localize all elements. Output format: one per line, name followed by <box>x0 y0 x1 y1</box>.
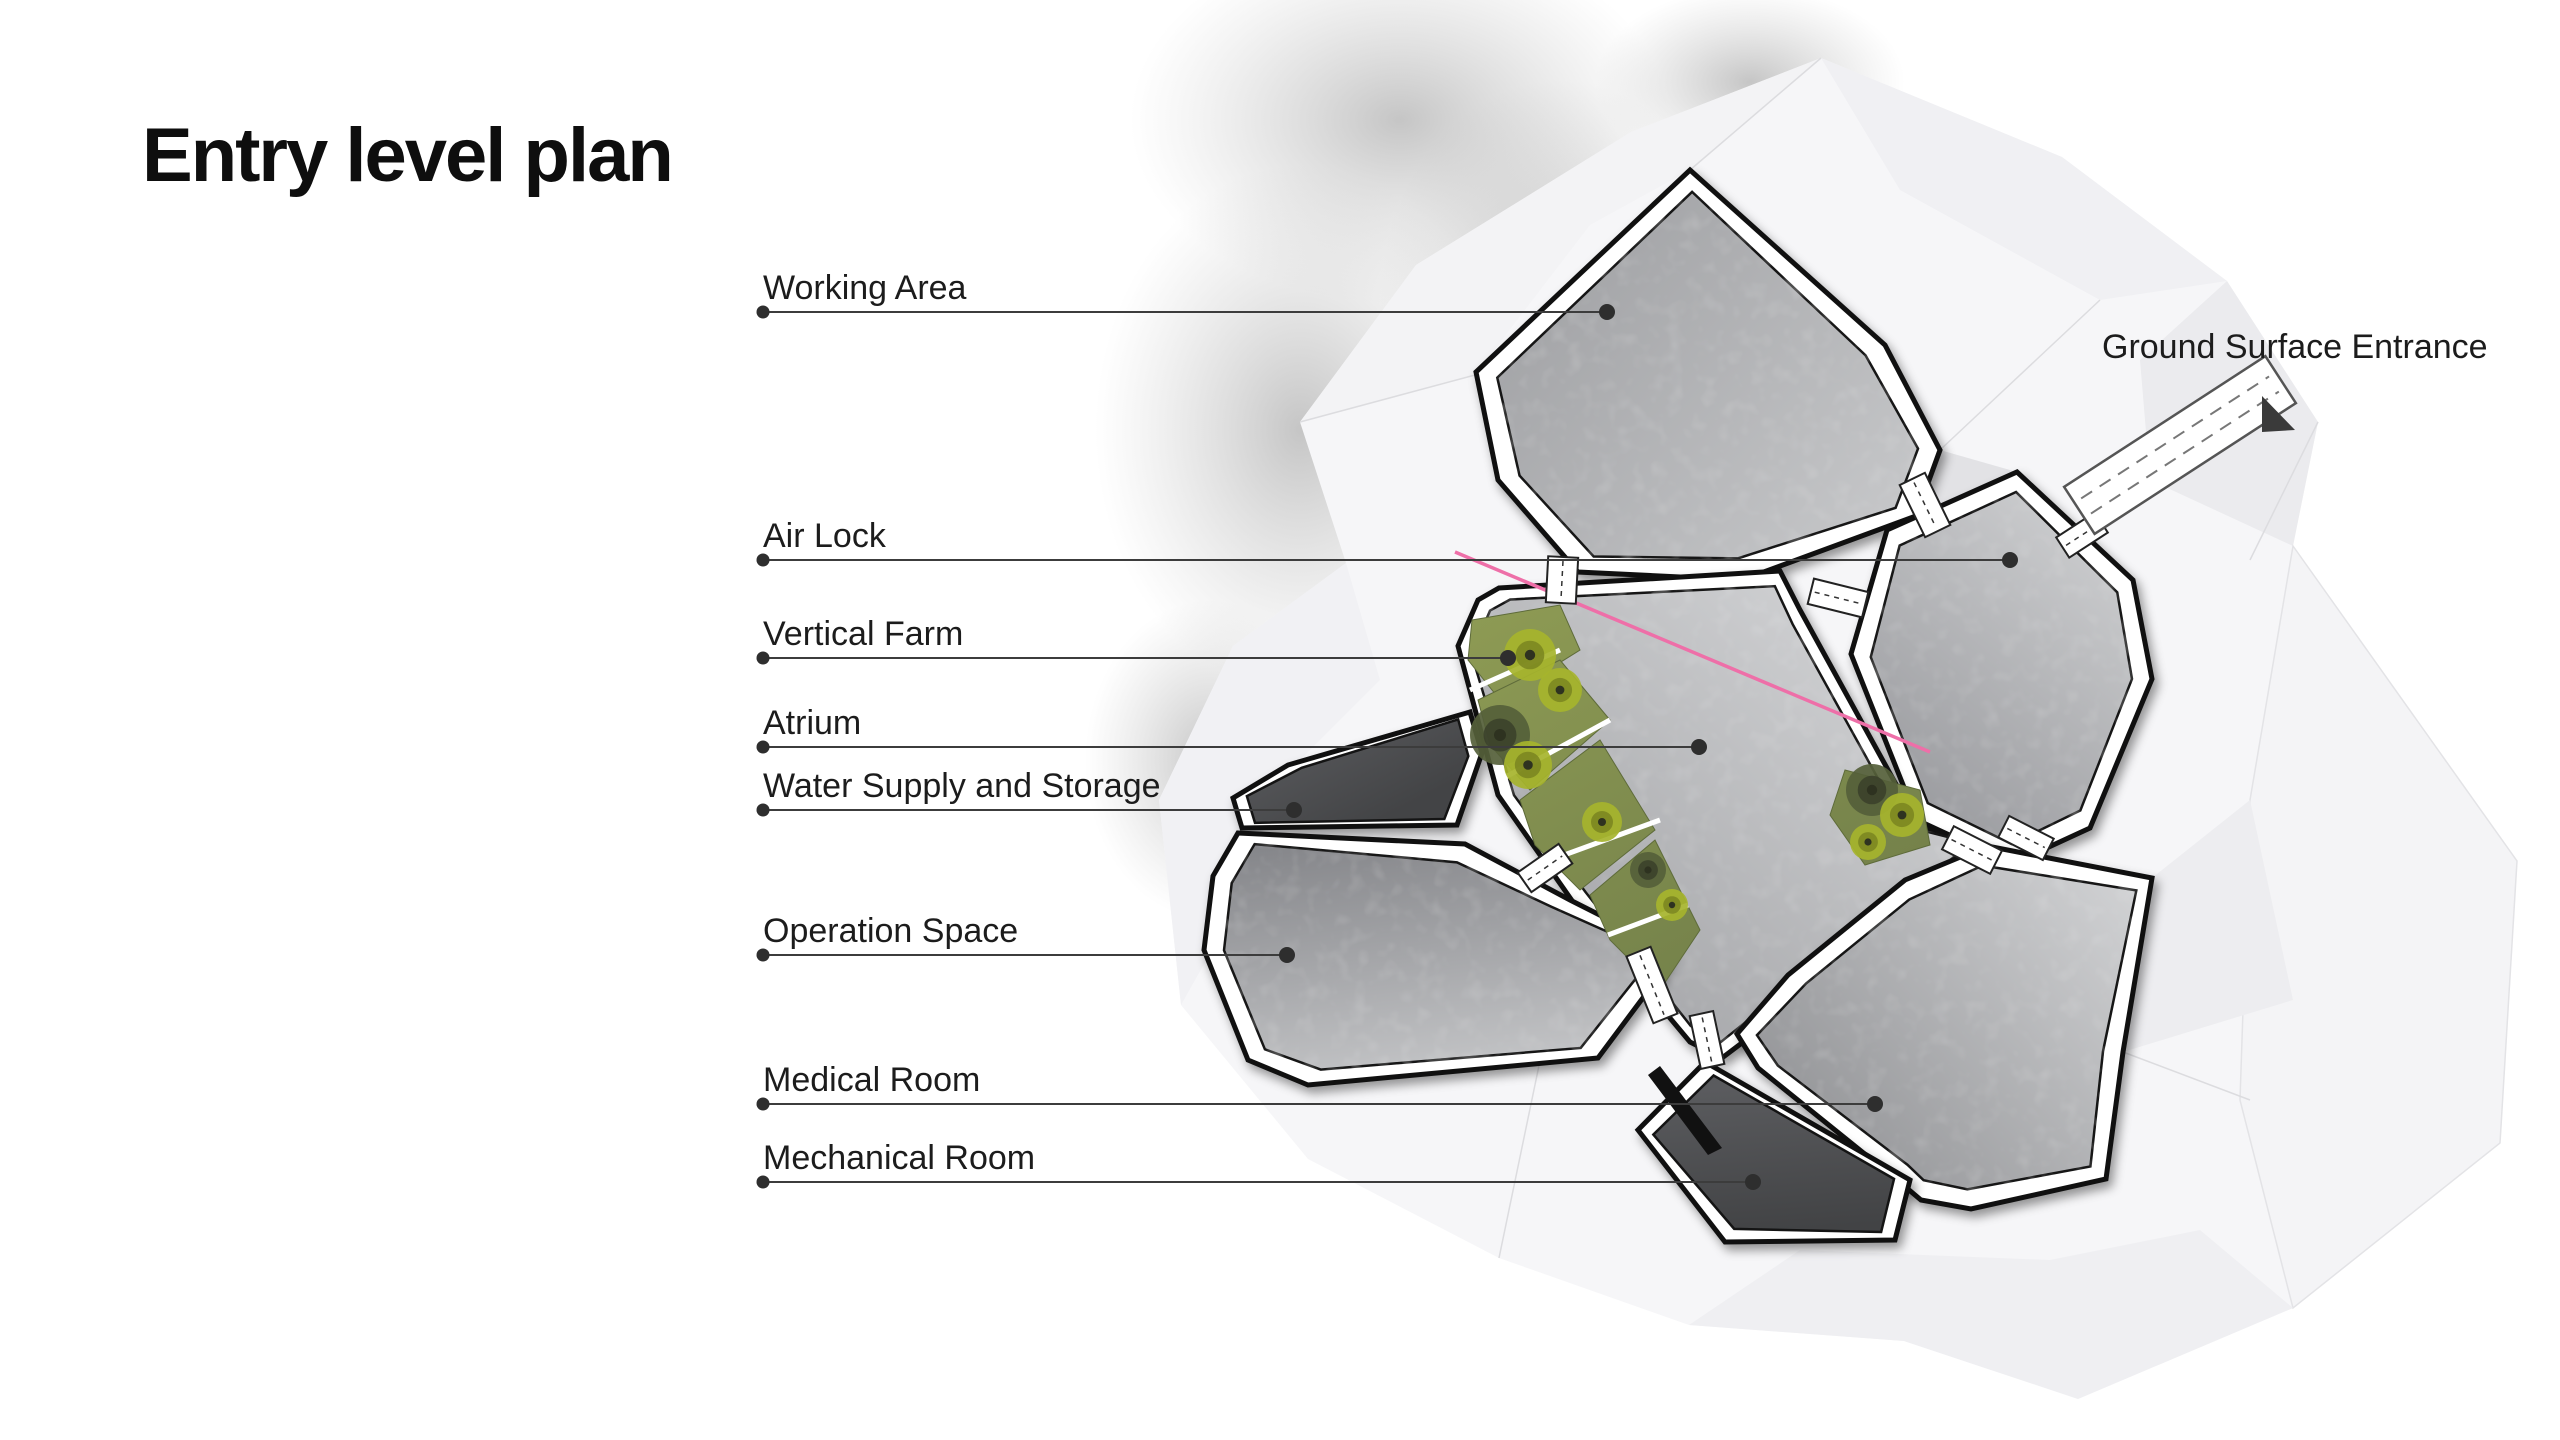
label-ground-surface-entrance: Ground Surface Entrance <box>2102 327 2488 367</box>
tree-icon <box>1582 802 1622 842</box>
leader-dot-end-air-lock <box>2002 552 2018 568</box>
label-medical-room: Medical Room <box>763 1060 980 1100</box>
tree-icon <box>1630 852 1666 888</box>
leader-dot-end-operation-space <box>1279 947 1295 963</box>
label-water-supply-and-storage: Water Supply and Storage <box>763 766 1161 806</box>
leader-dot-end-water-supply-and-storage <box>1286 802 1302 818</box>
label-mechanical-room: Mechanical Room <box>763 1138 1035 1178</box>
tree-icon <box>1504 741 1552 789</box>
corridor <box>1546 556 1578 604</box>
page-title: Entry level plan <box>142 112 672 199</box>
floor-plan-canvas: Entry level plan Working AreaAir LockVer… <box>0 0 2560 1440</box>
label-vertical-farm: Vertical Farm <box>763 614 963 654</box>
rock-facet <box>2240 546 2517 1308</box>
tree-icon <box>1850 824 1886 860</box>
label-working-area: Working Area <box>763 268 966 308</box>
tree-icon <box>1656 889 1688 921</box>
leader-dot-end-mechanical-room <box>1745 1174 1761 1190</box>
leader-dot-end-working-area <box>1599 304 1615 320</box>
label-operation-space: Operation Space <box>763 911 1018 951</box>
label-atrium: Atrium <box>763 703 861 743</box>
label-air-lock: Air Lock <box>763 516 886 556</box>
tree-icon <box>1880 793 1924 837</box>
leader-dot-end-atrium <box>1691 739 1707 755</box>
floor-plan-drawing <box>0 0 2560 1440</box>
leader-dot-end-medical-room <box>1867 1096 1883 1112</box>
leader-dot-end-vertical-farm <box>1500 650 1516 666</box>
tree-icon <box>1538 668 1582 712</box>
